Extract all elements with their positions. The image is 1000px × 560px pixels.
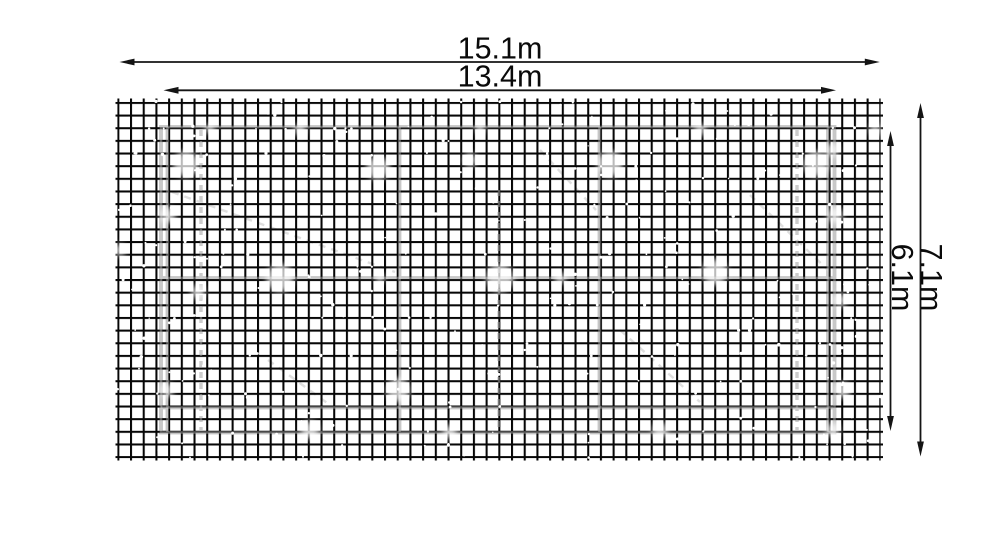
svg-text:6.1m: 6.1m bbox=[885, 244, 919, 312]
svg-text:13.4m: 13.4m bbox=[458, 60, 543, 94]
